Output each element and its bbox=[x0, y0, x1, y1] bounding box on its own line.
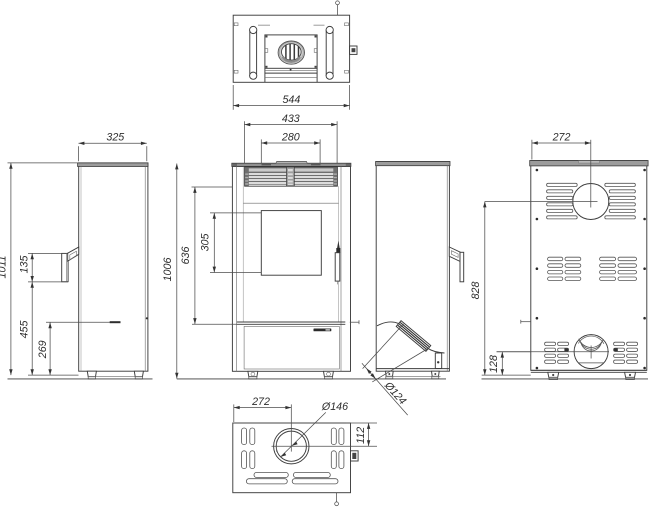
svg-text:305: 305 bbox=[200, 234, 212, 252]
svg-text:636: 636 bbox=[180, 247, 192, 265]
svg-text:455: 455 bbox=[18, 321, 30, 339]
svg-text:Ø124: Ø124 bbox=[381, 379, 408, 407]
svg-text:135: 135 bbox=[18, 256, 30, 274]
svg-text:828: 828 bbox=[470, 282, 482, 300]
svg-text:325: 325 bbox=[106, 132, 124, 144]
svg-text:1006: 1006 bbox=[162, 258, 174, 282]
svg-text:269: 269 bbox=[37, 340, 49, 359]
svg-text:112: 112 bbox=[355, 427, 367, 444]
svg-text:1011: 1011 bbox=[0, 255, 9, 278]
svg-text:544: 544 bbox=[282, 94, 300, 106]
svg-text:280: 280 bbox=[281, 131, 300, 143]
svg-text:272: 272 bbox=[251, 396, 270, 408]
svg-text:433: 433 bbox=[282, 113, 300, 125]
svg-text:272: 272 bbox=[552, 131, 571, 143]
svg-text:Ø146: Ø146 bbox=[321, 401, 348, 413]
svg-text:128: 128 bbox=[488, 355, 500, 373]
